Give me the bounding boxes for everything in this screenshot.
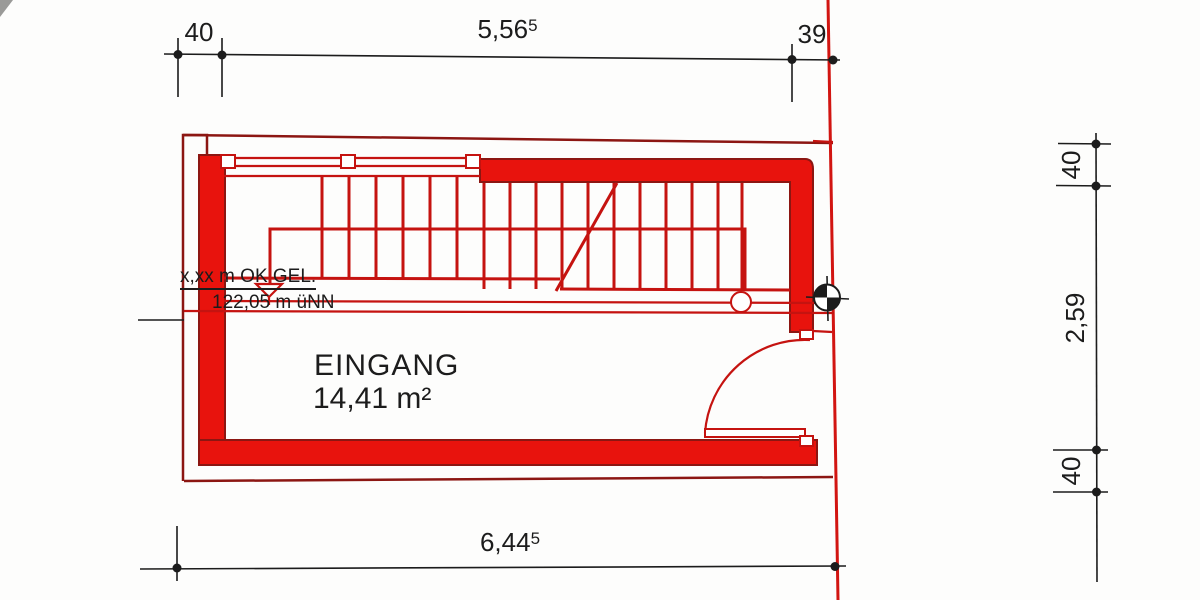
door-frame-icon <box>800 436 813 446</box>
door-leaf <box>705 429 805 437</box>
window-band <box>221 155 480 176</box>
dimension-label-right-bottom: 40 <box>1042 441 1102 501</box>
dimension-label-top-right: 39 <box>789 21 835 48</box>
dimension-superscript: 5 <box>528 16 537 35</box>
dimension-label-right-middle: 2,59 <box>1036 278 1116 358</box>
scan-artifact <box>0 0 13 17</box>
dimension-label-top-left: 40 <box>176 19 222 46</box>
wall-top-right <box>480 159 813 332</box>
room-name-label: EINGANG <box>314 350 459 382</box>
dimension-label-bottom: 6,445 <box>440 529 580 556</box>
room-area-label: 14,41 m² <box>313 383 431 415</box>
dimension-chain-top <box>164 38 840 102</box>
dimension-value: 6,44 <box>480 527 531 557</box>
window-post-icon <box>341 155 355 168</box>
dimension-superscript: 5 <box>531 529 540 548</box>
floor-plan-linework <box>0 0 1200 600</box>
elevation-note-line1: x,xx m OK GEL. <box>180 267 316 290</box>
column-circle-icon <box>731 292 751 312</box>
dimension-value: 5,56 <box>477 14 528 44</box>
dimension-label-right-top: 40 <box>1042 135 1102 195</box>
elevation-note-line2: 122,05 m üNN <box>212 293 335 313</box>
window-post-icon <box>466 155 480 168</box>
window-post-icon <box>221 155 235 168</box>
door-frame-icon <box>800 330 813 339</box>
wall-bottom <box>199 440 817 465</box>
dimension-label-top-main: 5,565 <box>430 16 585 43</box>
floor-plan-canvas: 40 5,565 39 6,445 40 2,59 40 EINGANG 14,… <box>0 0 1200 600</box>
door-swing-arc <box>705 340 810 433</box>
stair-handrail <box>270 229 745 290</box>
door <box>705 330 813 446</box>
